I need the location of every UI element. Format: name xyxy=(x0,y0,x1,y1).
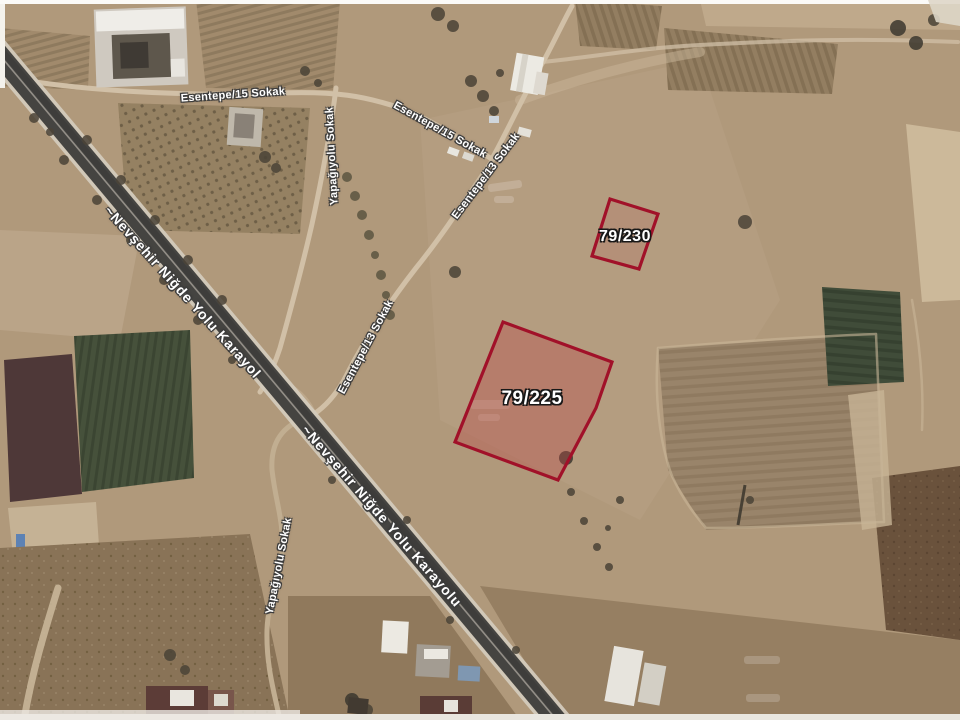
terrain-graphics xyxy=(0,0,960,720)
satellite-map[interactable]: Esentepe/15 SokakEsentepe/15 SokakEsente… xyxy=(0,0,960,720)
